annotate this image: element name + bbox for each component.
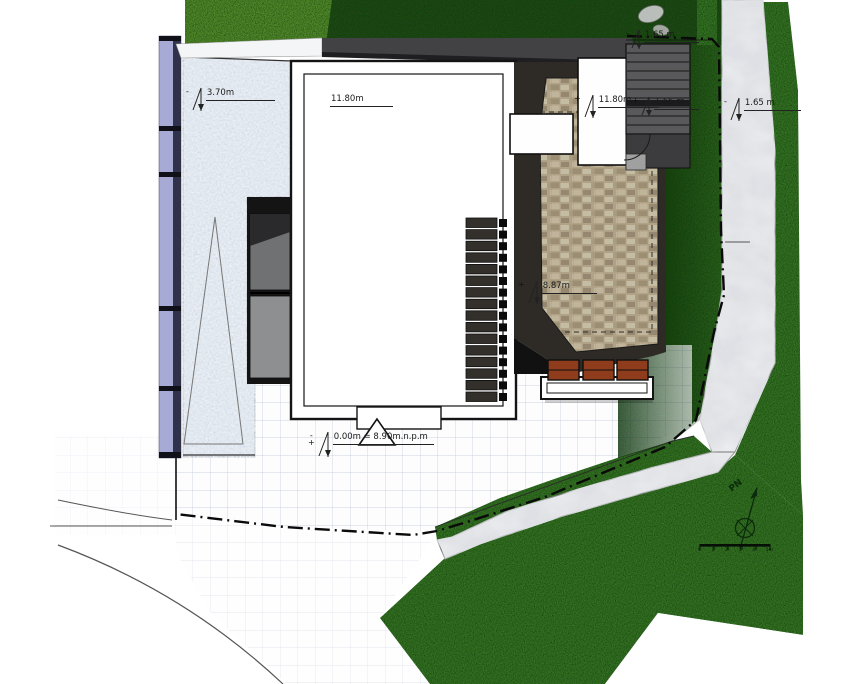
- scale-tick-label: 0: [698, 548, 701, 553]
- level-label-path-east: - 1.65 m: [724, 96, 801, 124]
- scale-tick-label: 5m: [766, 548, 773, 553]
- scale-tick-label: 2: [725, 548, 728, 553]
- utility-box: [626, 154, 646, 170]
- scale-tick-label: 4: [752, 548, 755, 553]
- site-plan: - 3.70m 11.80m + 11.80m - 1.65 m + 1.65 …: [0, 0, 845, 684]
- bench: [548, 360, 579, 380]
- level-label-patio: + 8.87m: [518, 279, 597, 307]
- scale-tick-label: 3: [739, 548, 742, 553]
- entrance-porch: [357, 407, 441, 429]
- site-plan-canvas: [0, 0, 845, 684]
- scale-bar-labels: 0 1 2 3 4 5m: [698, 548, 773, 553]
- scale-tick-label: 1: [712, 548, 715, 553]
- level-marker-icon: [190, 86, 204, 114]
- grass-top-left-light: [185, 0, 332, 44]
- bench-row: [541, 360, 653, 403]
- level-label-stairs-mid: + 1.65 m: [632, 95, 699, 119]
- parked-cars: [247, 197, 292, 384]
- level-label-stairs-top: - 1.65 m: [626, 28, 699, 52]
- level-marker-icon: [630, 28, 642, 52]
- level-marker-icon: [728, 96, 742, 124]
- level-marker-icon: [316, 430, 331, 460]
- level-label-terrace: - 3.70m: [186, 86, 275, 114]
- dim-label-building-width: 11.80m: [330, 94, 393, 107]
- level-label-entrance: -+ 0.00m = 8.90m.n.p.m: [308, 430, 434, 460]
- roof-plane-b: [510, 114, 573, 154]
- level-marker-icon: [640, 95, 652, 119]
- bench: [617, 360, 648, 380]
- level-marker-icon: [582, 93, 596, 121]
- level-marker-icon: [526, 279, 540, 307]
- grass-light-band: [697, 0, 717, 45]
- retaining-wall: [159, 36, 181, 458]
- bench: [583, 360, 614, 380]
- building-footprint: [291, 61, 516, 445]
